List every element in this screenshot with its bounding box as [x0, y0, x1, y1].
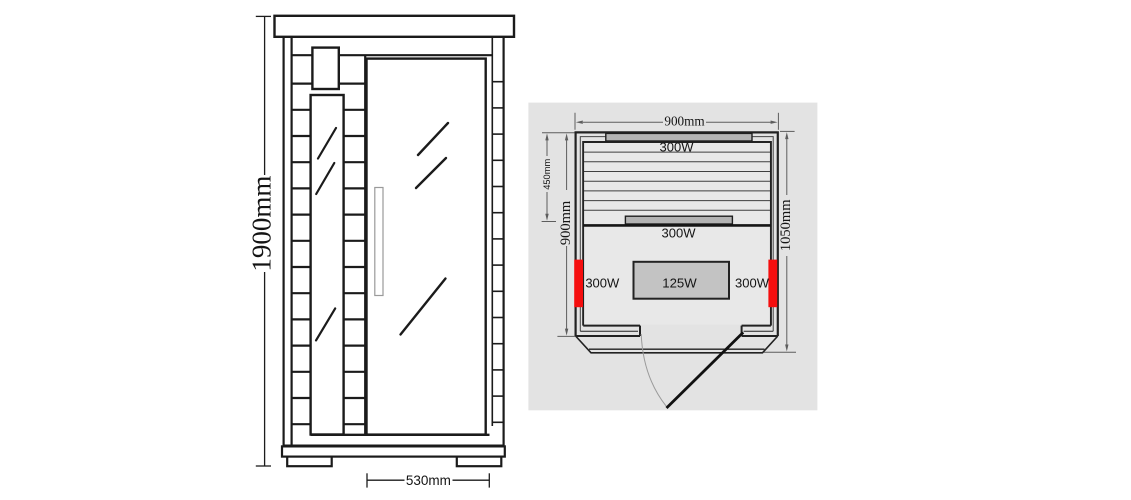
svg-text:125W: 125W [662, 275, 697, 290]
svg-text:1900mm: 1900mm [247, 176, 277, 272]
svg-text:300W: 300W [585, 276, 620, 291]
svg-text:300W: 300W [662, 225, 697, 240]
svg-text:450mm: 450mm [542, 159, 552, 190]
svg-text:300W: 300W [660, 140, 695, 155]
svg-text:900mm: 900mm [558, 200, 574, 245]
svg-text:300W: 300W [735, 276, 770, 291]
svg-text:1050mm: 1050mm [778, 199, 794, 251]
svg-text:900mm: 900mm [664, 114, 705, 129]
svg-text:530mm: 530mm [406, 473, 451, 488]
